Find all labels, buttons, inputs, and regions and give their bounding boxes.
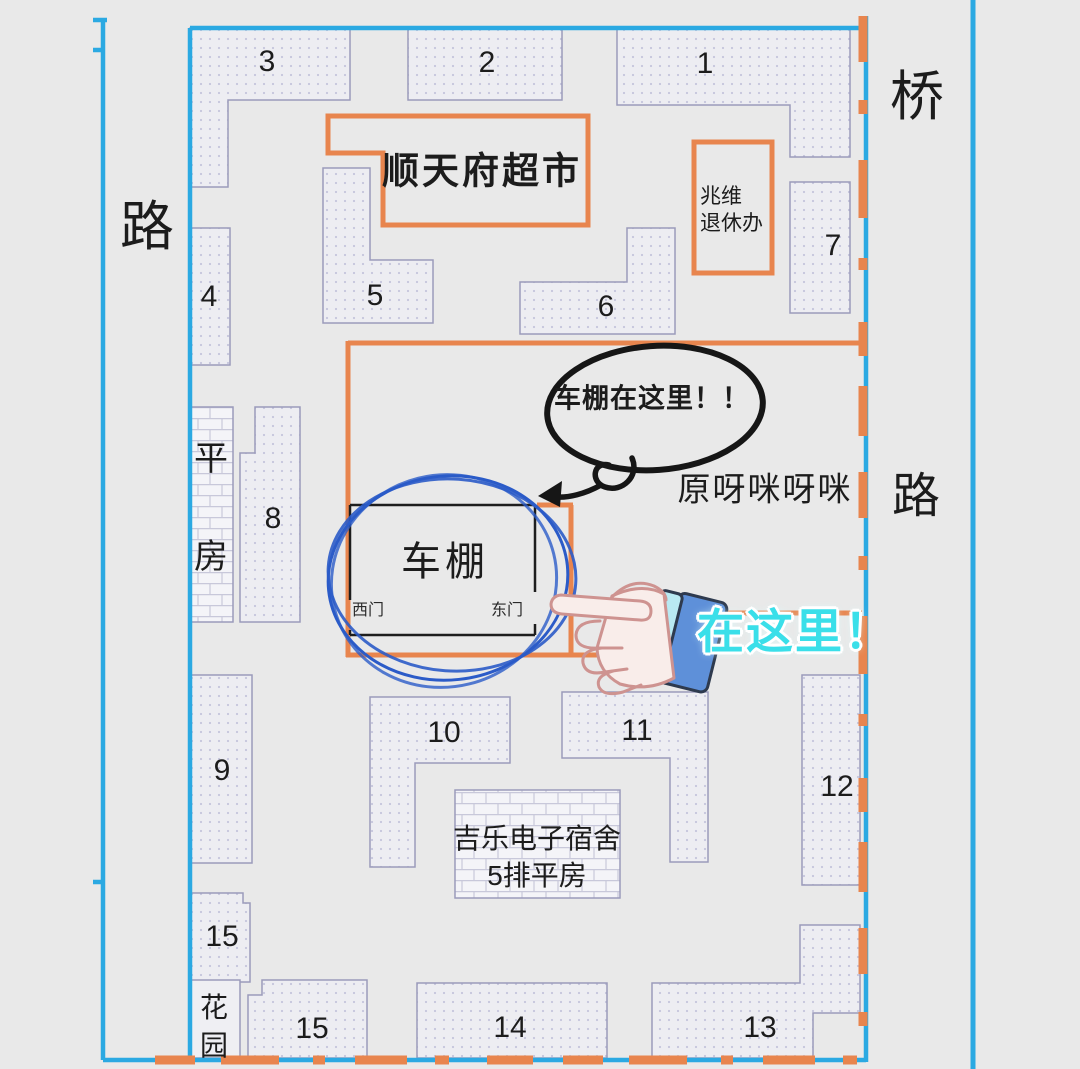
building-15-upper-label: 15 — [205, 922, 238, 952]
garden-char1: 花 — [200, 994, 228, 1022]
building-14-label: 14 — [493, 1013, 526, 1043]
retirement-office-label: 兆维 退休办 — [700, 183, 763, 237]
building-11-label: 11 — [621, 716, 652, 746]
retirement-office-line1: 兆维 — [700, 183, 763, 210]
building-4-label: 4 — [201, 282, 218, 312]
flat-house-char1: 平 — [194, 442, 228, 476]
building-1-shape — [617, 28, 850, 157]
building-8-label: 8 — [265, 504, 282, 534]
dorm-label-line2: 5排平房 — [487, 862, 587, 890]
building-1-label: 1 — [697, 49, 714, 79]
flat-house-char2: 房 — [194, 540, 228, 574]
building-2-label: 2 — [479, 48, 496, 78]
building-7-label: 7 — [825, 231, 842, 261]
dorm-label-line1: 吉乐电子宿舍 — [453, 825, 621, 853]
building-10-label: 10 — [427, 718, 460, 748]
former-site-label: 原呀咪呀咪 — [678, 473, 853, 506]
bike-shed-label: 车棚 — [401, 542, 489, 582]
west-gate-label: 西门 — [352, 603, 384, 619]
building-6-label: 6 — [598, 292, 615, 322]
retirement-office-line2: 退休办 — [700, 210, 763, 237]
speech-bubble-text: 车棚在这里！！ — [554, 386, 750, 413]
building-9-label: 9 — [214, 756, 231, 786]
building-3-label: 3 — [259, 47, 276, 77]
community-map: 路 桥 路 1 2 3 4 5 6 7 8 9 10 11 12 13 14 1… — [0, 0, 1080, 1069]
road-label-right: 路 — [892, 473, 940, 521]
building-5-label: 5 — [367, 281, 384, 311]
building-12-label: 12 — [820, 772, 853, 802]
road-label-left: 路 — [120, 200, 174, 254]
bridge-label: 桥 — [890, 70, 944, 124]
building-13-label: 13 — [743, 1013, 776, 1043]
supermarket-label: 顺天府超市 — [382, 154, 582, 191]
east-gate-label: 东门 — [491, 603, 523, 619]
garden-char2: 园 — [200, 1032, 228, 1060]
here-callout-text: 在这里！ — [697, 608, 893, 655]
building-15-lower-label: 15 — [295, 1014, 328, 1044]
